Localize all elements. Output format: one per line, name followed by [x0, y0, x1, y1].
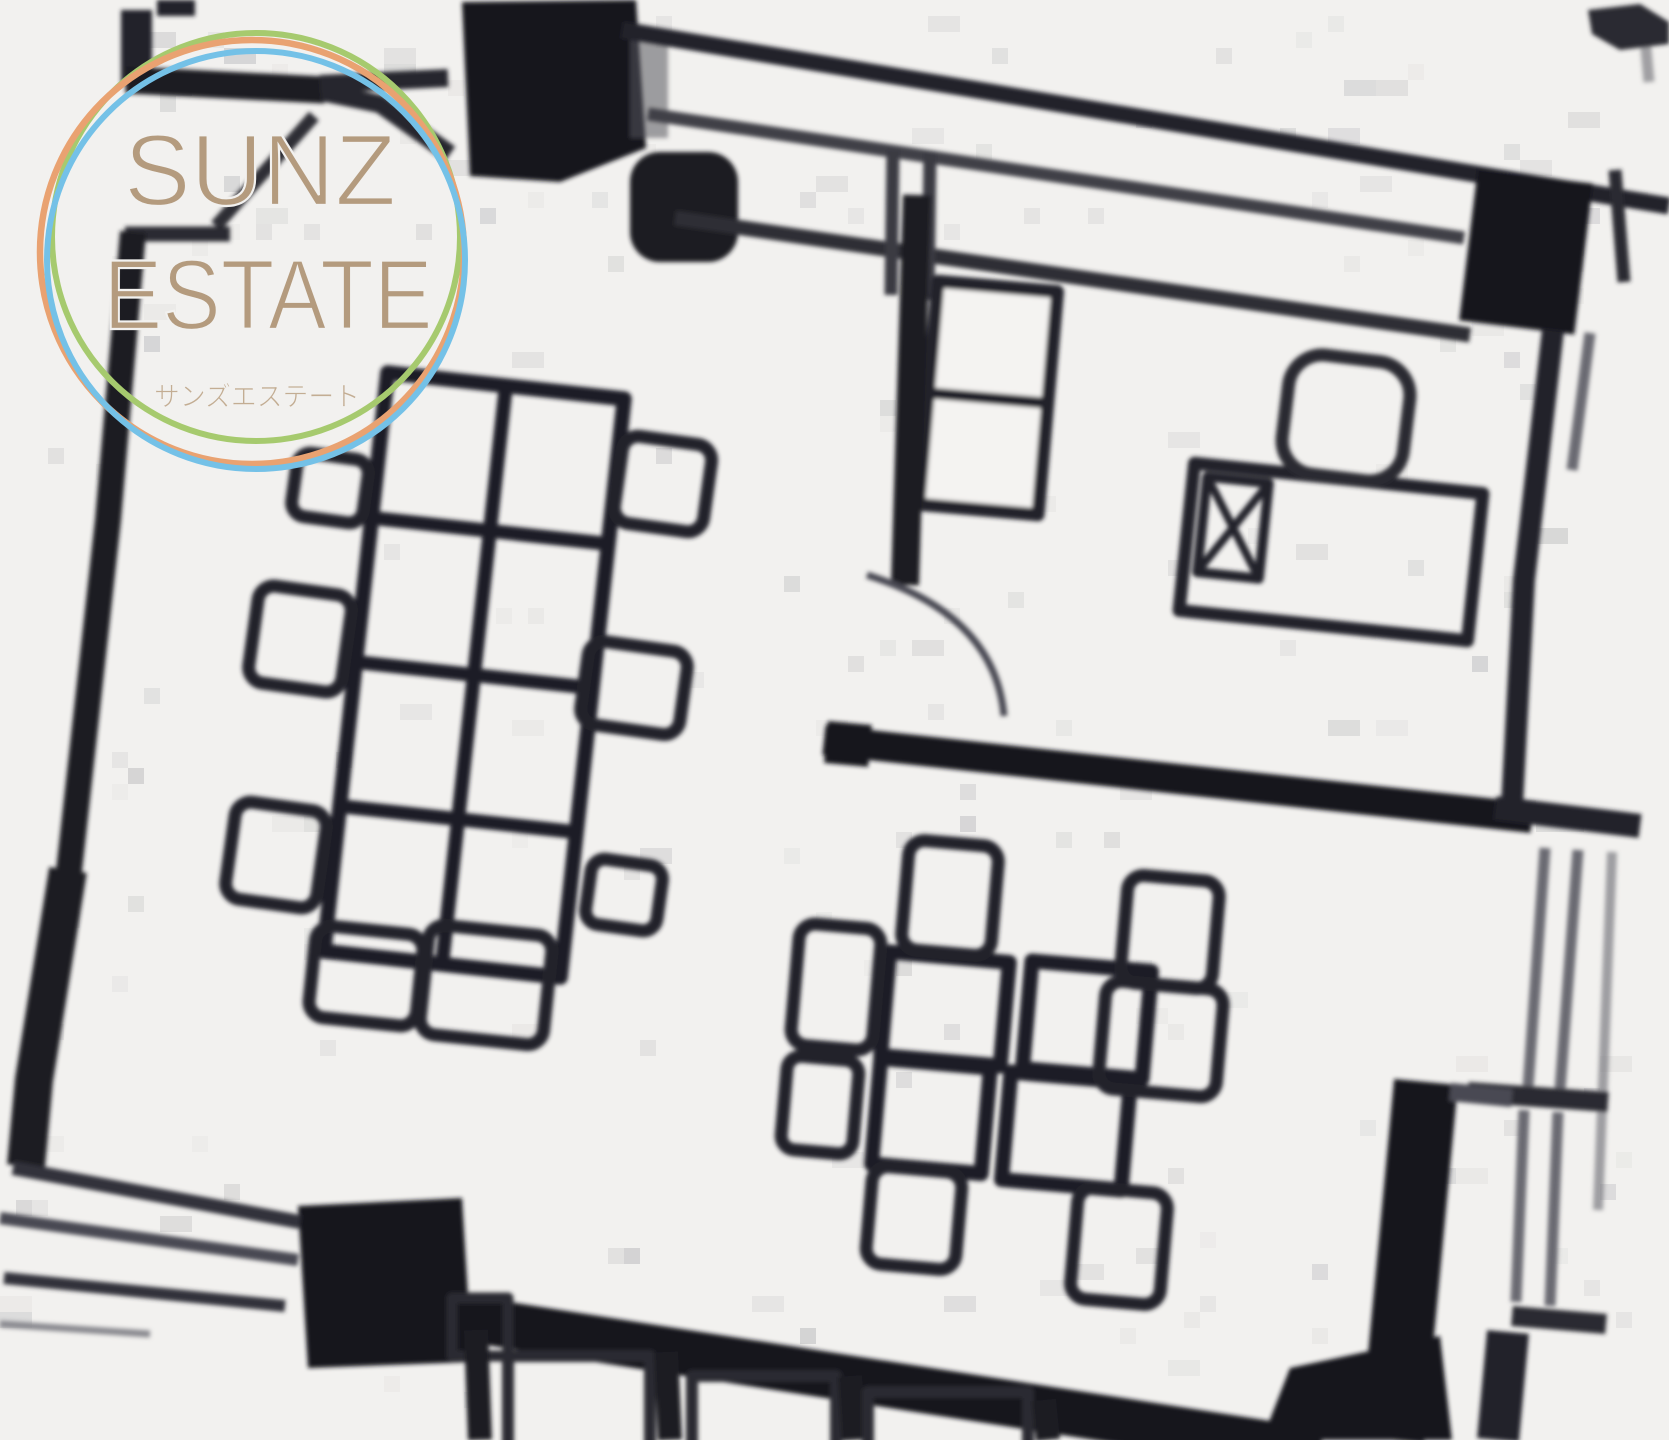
svg-text:サンズエステート: サンズエステート	[154, 382, 360, 412]
svg-text:ESTATE: ESTATE	[104, 239, 433, 350]
svg-text:SUNZ: SUNZ	[124, 115, 396, 227]
